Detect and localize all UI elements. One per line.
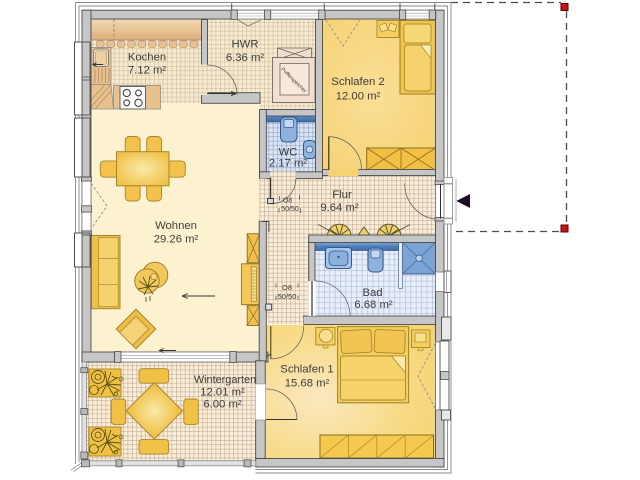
svg-text:6.68 m²: 6.68 m²: [354, 299, 393, 311]
svg-text:29.26 m²: 29.26 m²: [154, 234, 199, 246]
svg-text:50/50: 50/50: [281, 206, 299, 213]
svg-text:Flur: Flur: [332, 189, 352, 201]
svg-text:6.00 m²: 6.00 m²: [203, 399, 242, 411]
svg-text:Wintergarten: Wintergarten: [194, 374, 256, 386]
svg-text:15.68 m²: 15.68 m²: [285, 378, 330, 390]
svg-text:Schlafen 1: Schlafen 1: [280, 364, 333, 376]
svg-text:9.64 m²: 9.64 m²: [320, 202, 359, 214]
svg-text:7.12 m²: 7.12 m²: [128, 65, 167, 77]
svg-text:Bad: Bad: [362, 287, 382, 299]
svg-text:O8: O8: [282, 283, 292, 292]
svg-text:6.36 m²: 6.36 m²: [226, 52, 265, 64]
svg-text:O8: O8: [283, 198, 292, 205]
svg-text:2.17 m²: 2.17 m²: [269, 158, 308, 170]
svg-text:Kochen: Kochen: [128, 52, 166, 64]
svg-text:Wohnen: Wohnen: [155, 220, 197, 232]
svg-text:12.01 m²: 12.01 m²: [200, 387, 245, 399]
svg-text:HWR: HWR: [232, 39, 259, 51]
svg-text:50/50: 50/50: [278, 292, 297, 301]
svg-text:12.00 m²: 12.00 m²: [336, 91, 381, 103]
svg-text:Schlafen 2: Schlafen 2: [331, 76, 384, 88]
